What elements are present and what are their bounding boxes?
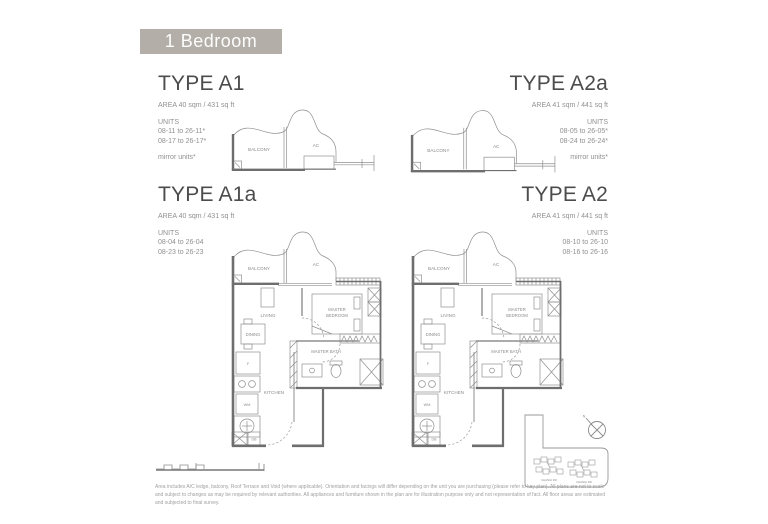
scale-bar <box>155 460 267 473</box>
fridge-label: F <box>247 362 250 366</box>
balcony-label: BALCONY <box>248 266 270 271</box>
balcony-label: BALCONY <box>428 266 450 271</box>
door-swings <box>266 318 340 445</box>
dining-label: DINING <box>426 332 441 337</box>
site-key-plan: N CHANGI RD CHANGI RD <box>500 410 618 494</box>
floorplan-type-a1a: BALCONY AC LIVING DINING MASTER BEDROOM … <box>228 226 386 450</box>
master-bedroom-label-2: BEDROOM <box>506 313 528 318</box>
road-label-left: CHANGI RD <box>541 478 557 482</box>
kitchen-label: KITCHEN <box>444 390 464 395</box>
thin-walls <box>412 111 555 173</box>
thin-walls <box>233 110 374 171</box>
fridge-label: F <box>427 362 430 366</box>
north-label: N <box>583 415 586 419</box>
type-a1a-area: AREA 40 sqm / 431 sq ft <box>158 212 257 221</box>
type-a1a-title: TYPE A1a <box>158 181 257 209</box>
dining-label: DINING <box>246 332 261 337</box>
kitchen-label: KITCHEN <box>264 390 284 395</box>
full-floorplan-drawing: BALCONY AC LIVING DINING MASTER BEDROOM … <box>228 226 386 450</box>
db-label: DB <box>252 438 258 442</box>
building-cluster-right <box>568 460 597 477</box>
master-bath-label: MASTER BATH <box>491 349 520 354</box>
master-bedroom-label-1: MASTER <box>508 307 525 312</box>
floorplan-type-a2a: BALCONY AC <box>407 106 559 180</box>
type-a2a-title: TYPE A2a <box>510 70 609 98</box>
living-label: LIVING <box>260 313 275 318</box>
type-a2-area: AREA 41 sqm / 441 sq ft <box>521 212 608 221</box>
type-a1-title: TYPE A1 <box>158 70 245 98</box>
balcony-label: BALCONY <box>248 147 270 152</box>
section-badge-1-bedroom: 1 Bedroom <box>140 29 282 54</box>
north-indicator-icon <box>586 418 606 439</box>
partial-floorplan-drawing: BALCONY AC <box>228 106 378 178</box>
floorplan-type-a1: BALCONY AC <box>228 106 378 178</box>
washer-label: WM <box>244 403 251 407</box>
ac-label: AC <box>313 143 320 148</box>
master-bedroom-label-2: BEDROOM <box>326 313 348 318</box>
living-label: LIVING <box>440 313 455 318</box>
ac-label: AC <box>313 262 320 267</box>
db-label: DB <box>432 438 438 442</box>
master-bedroom-label-1: MASTER <box>328 307 345 312</box>
balcony-label: BALCONY <box>427 148 449 153</box>
ac-label: AC <box>493 262 500 267</box>
partial-floorplan-drawing: BALCONY AC <box>407 106 559 180</box>
disclaimer-text: Area includes A/C ledge, balcony, Roof T… <box>155 484 613 507</box>
thick-walls <box>232 256 382 447</box>
type-a2-title: TYPE A2 <box>521 181 608 209</box>
building-cluster-left <box>534 457 563 474</box>
washer-label: WM <box>424 403 431 407</box>
thin-walls <box>232 232 383 445</box>
ac-label: AC <box>493 144 500 149</box>
master-bath-label: MASTER BATH <box>311 349 340 354</box>
